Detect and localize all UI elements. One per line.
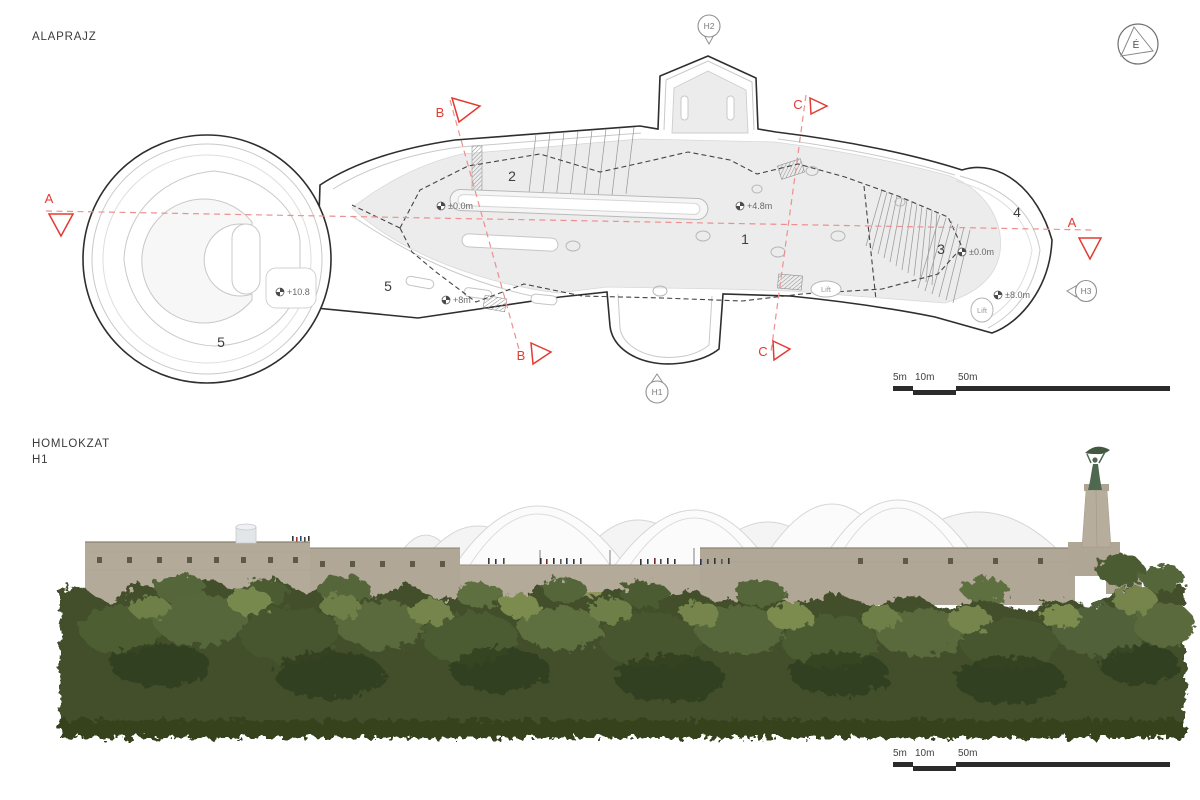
benchmark-east-terrace (994, 291, 1002, 299)
tree-base-shadow (60, 720, 1185, 738)
bastion-slot (681, 96, 688, 120)
statue-palm-leaf (1085, 447, 1110, 455)
drawing-sheet: ALAPRAJZ HOMLOKZAT H1 (0, 0, 1200, 800)
section-label-a-left: A (45, 191, 54, 206)
benchmark-west-bastion (276, 288, 284, 296)
section-arrow-c-bottom (773, 341, 790, 360)
zone-4: 4 (1013, 204, 1021, 220)
bastion-void (232, 224, 260, 294)
bastion-slot (727, 96, 734, 120)
level-east-court: ±0.0m (969, 247, 994, 257)
zone-3: 3 (937, 241, 945, 257)
statue-figure (1088, 464, 1102, 490)
benchmark-terrace (442, 296, 450, 304)
scale-50m: 50m (958, 372, 977, 383)
scale-5m: 5m (893, 372, 907, 383)
benchmark-courtyard (736, 202, 744, 210)
scale-5m: 5m (893, 748, 907, 759)
benchmark-east-court (958, 248, 966, 256)
scale-50m: 50m (958, 748, 977, 759)
h2-label: H2 (704, 21, 715, 31)
section-label-a-right: A (1068, 215, 1077, 230)
scale-10m: 10m (915, 372, 934, 383)
level-terrace: +8m (453, 295, 471, 305)
lift-1-label: Lift (821, 285, 832, 294)
lift-2: Lift (971, 298, 993, 322)
elevation-view: 5m 10m 50m (0, 430, 1200, 800)
section-label-b-bottom: B (517, 348, 526, 363)
elevation-marker-h2: H2 (698, 15, 720, 44)
lift-1: Lift (811, 281, 841, 297)
zone-2: 2 (508, 168, 516, 184)
elevation-marker-h3: H3 (1067, 281, 1097, 302)
level-east-terrace: ±8.0m (1005, 290, 1030, 300)
benchmark-entry (437, 202, 445, 210)
section-arrow-b-top (452, 98, 480, 122)
level-courtyard: +4.8m (747, 201, 772, 211)
zone-1: 1 (741, 231, 749, 247)
h1-label: H1 (652, 387, 663, 397)
level-west-bastion: +10.8 (287, 287, 310, 297)
north-label: É (1133, 38, 1140, 51)
section-arrow-c-top (810, 98, 827, 114)
zone-5-bastion: 5 (217, 334, 225, 350)
scale-bar-plan: 5m 10m 50m (893, 372, 1170, 395)
west-round-bastion (83, 135, 331, 383)
section-label-c-bottom: C (758, 344, 767, 359)
section-arrow-b-bottom (531, 343, 551, 364)
section-arrow-a-right (1079, 238, 1101, 259)
lift-2-label: Lift (977, 306, 988, 315)
wall-cylinder-tower (236, 524, 256, 543)
elevation-marker-h1: H1 (646, 374, 668, 403)
floor-plan: Lift Lift ±0.0m +4.8m +10.8 +8m ±0.0m ±8… (0, 0, 1200, 430)
level-entry: ±0.0m (448, 201, 473, 211)
section-label-c-top: C (793, 97, 802, 112)
north-indicator: É (1118, 24, 1158, 64)
scale-10m: 10m (915, 748, 934, 759)
section-arrow-a-left (49, 214, 73, 236)
scale-bar-elevation: 5m 10m 50m (893, 748, 1170, 771)
h3-pointer (1067, 286, 1076, 297)
section-label-b-top: B (436, 105, 445, 120)
h3-label: H3 (1081, 286, 1092, 296)
zone-5-terrace: 5 (384, 278, 392, 294)
